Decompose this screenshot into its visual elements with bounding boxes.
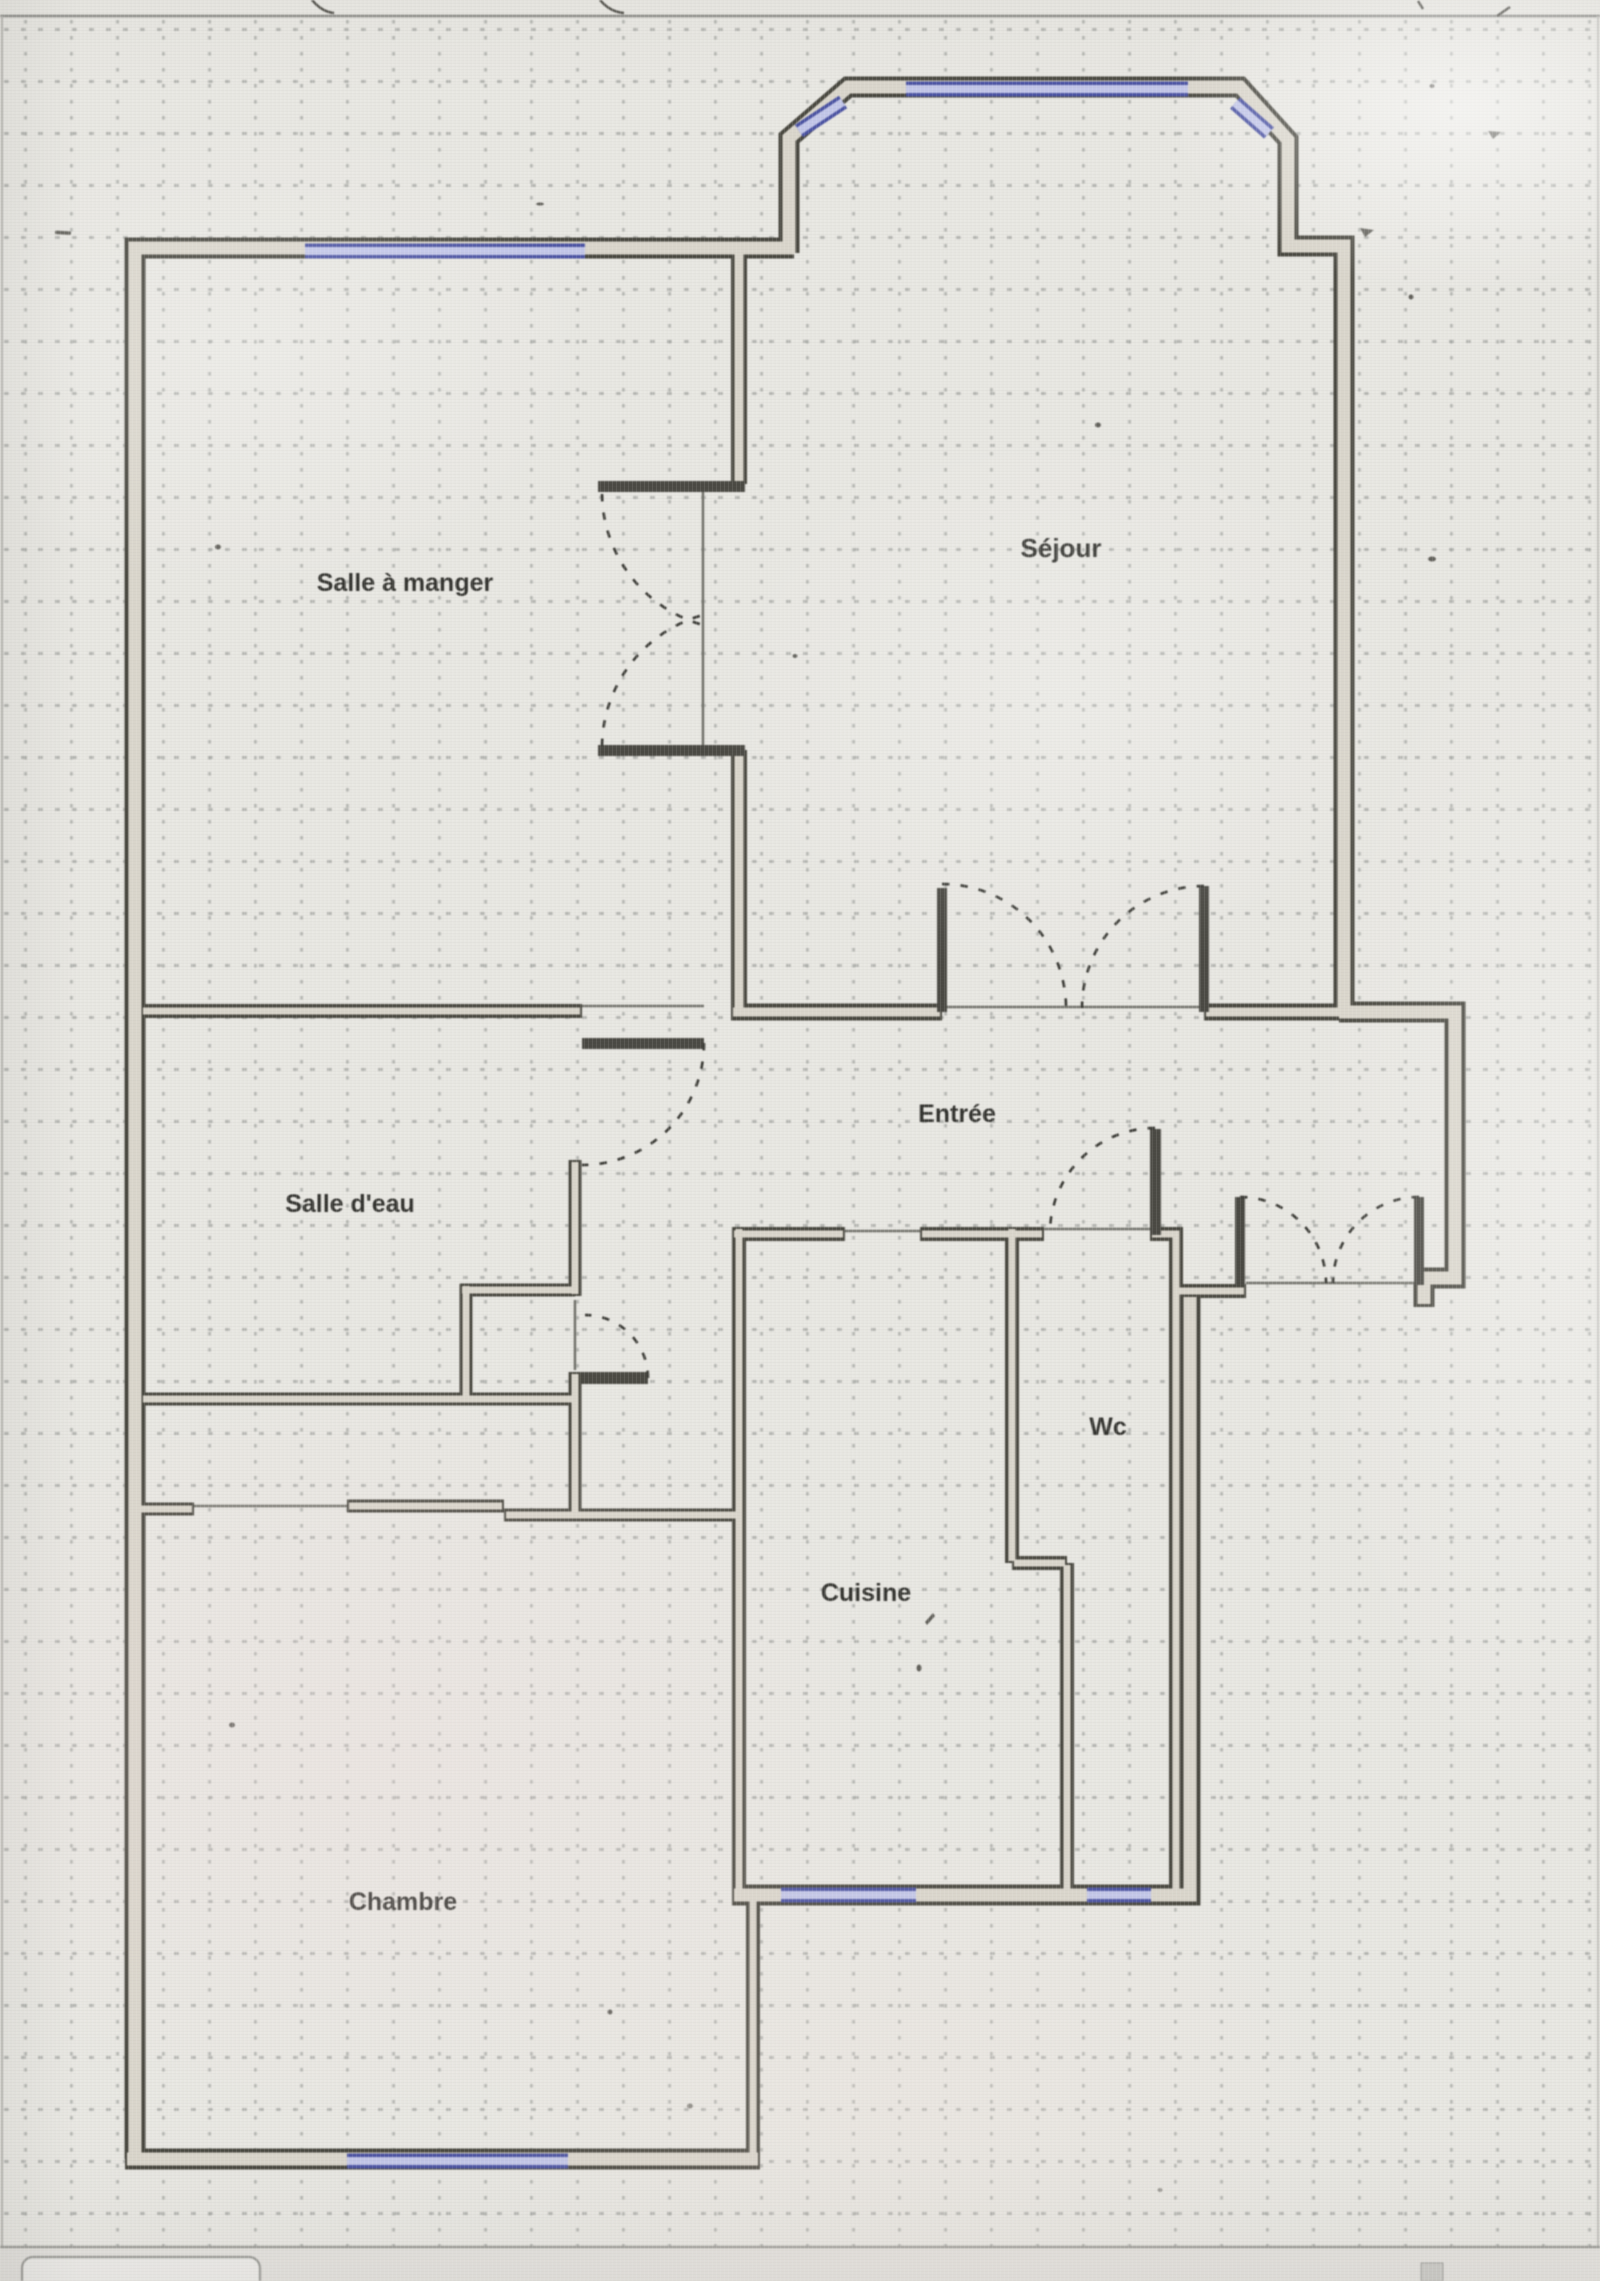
svg-text:Salle à manger: Salle à manger xyxy=(317,569,494,597)
svg-text:Wc: Wc xyxy=(1089,1413,1127,1441)
svg-text:Séjour: Séjour xyxy=(1021,533,1102,563)
svg-text:Cuisine: Cuisine xyxy=(821,1579,911,1607)
svg-text:Entrée: Entrée xyxy=(918,1100,996,1128)
svg-text:Salle d'eau: Salle d'eau xyxy=(285,1190,415,1218)
svg-text:Chambre: Chambre xyxy=(349,1888,457,1916)
